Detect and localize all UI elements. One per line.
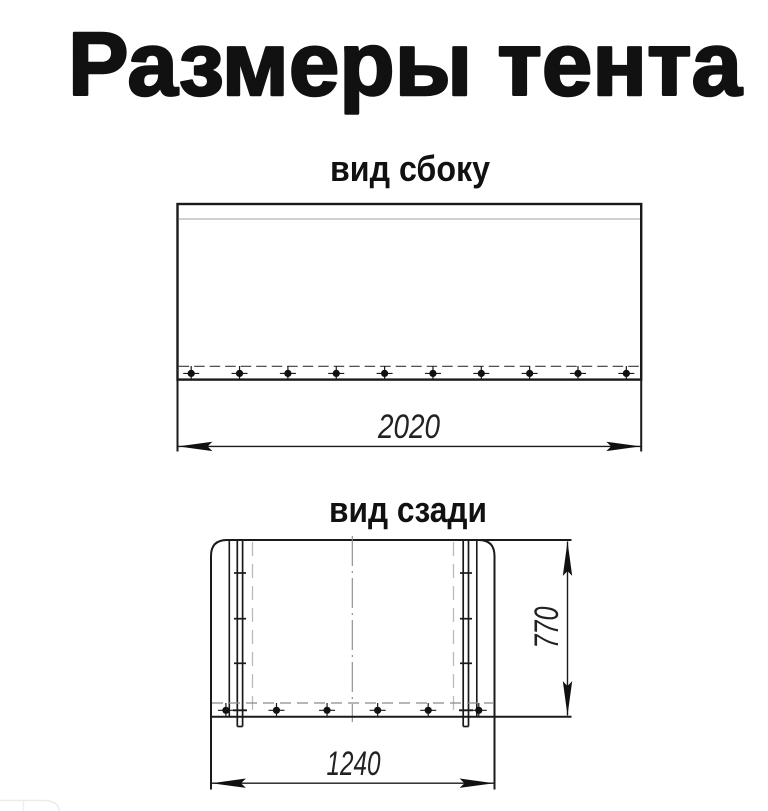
svg-text:2020: 2020 [377,408,440,446]
svg-text:Размеры тента: Размеры тента [68,15,743,115]
svg-text:1240: 1240 [327,745,381,783]
svg-text:770: 770 [528,606,566,648]
svg-text:вид сзади: вид сзади [329,489,487,530]
svg-text:вид сбоку: вид сбоку [330,148,490,189]
